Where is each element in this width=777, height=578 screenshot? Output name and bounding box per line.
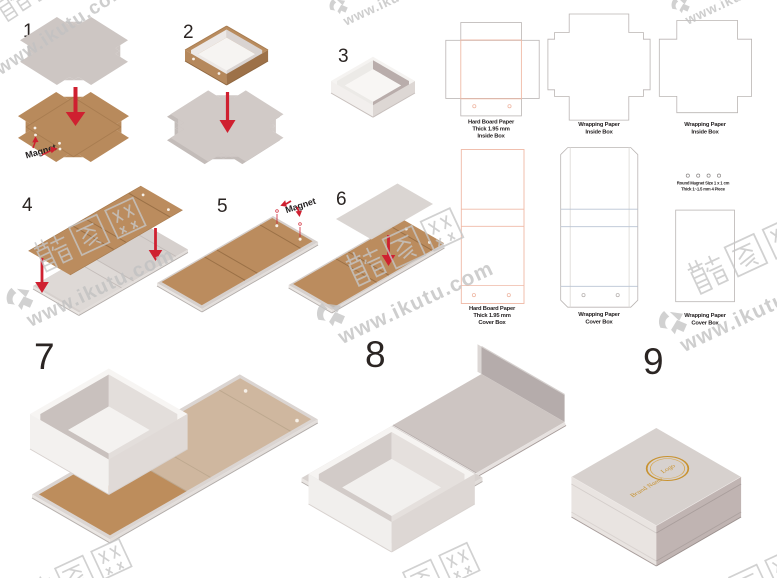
svg-text:Thick 1.95 mm: Thick 1.95 mm xyxy=(472,127,509,133)
svg-text:5: 5 xyxy=(217,196,228,217)
svg-text:8: 8 xyxy=(365,334,386,375)
svg-text:Inside Box: Inside Box xyxy=(585,130,613,136)
svg-text:7: 7 xyxy=(34,336,55,377)
svg-text:Wrapping Paper: Wrapping Paper xyxy=(684,122,726,128)
svg-text:Wrapping Paper: Wrapping Paper xyxy=(578,312,620,318)
svg-text:Round Magnet Size 1 x 1 cm: Round Magnet Size 1 x 1 cm xyxy=(677,181,730,186)
svg-text:4: 4 xyxy=(22,195,33,216)
svg-text:3: 3 xyxy=(338,46,349,67)
svg-text:Inside Box: Inside Box xyxy=(477,134,505,140)
svg-text:Thick 1~1.5 mm 4 Piece: Thick 1~1.5 mm 4 Piece xyxy=(681,187,726,192)
svg-text:Wrapping Paper: Wrapping Paper xyxy=(578,122,620,128)
svg-text:2: 2 xyxy=(183,22,194,43)
svg-text:Inside Box: Inside Box xyxy=(691,130,719,136)
svg-text:6: 6 xyxy=(336,189,347,210)
svg-text:9: 9 xyxy=(643,341,664,382)
svg-text:Thick 1.95 mm: Thick 1.95 mm xyxy=(473,313,510,319)
svg-text:Cover Box: Cover Box xyxy=(478,320,506,326)
svg-text:Hard Board Paper: Hard Board Paper xyxy=(469,306,516,312)
svg-text:www.ikutu.com: www.ikutu.com xyxy=(340,0,447,29)
svg-text:Hard Board Paper: Hard Board Paper xyxy=(468,120,515,126)
svg-text:Cover Box: Cover Box xyxy=(585,320,613,326)
